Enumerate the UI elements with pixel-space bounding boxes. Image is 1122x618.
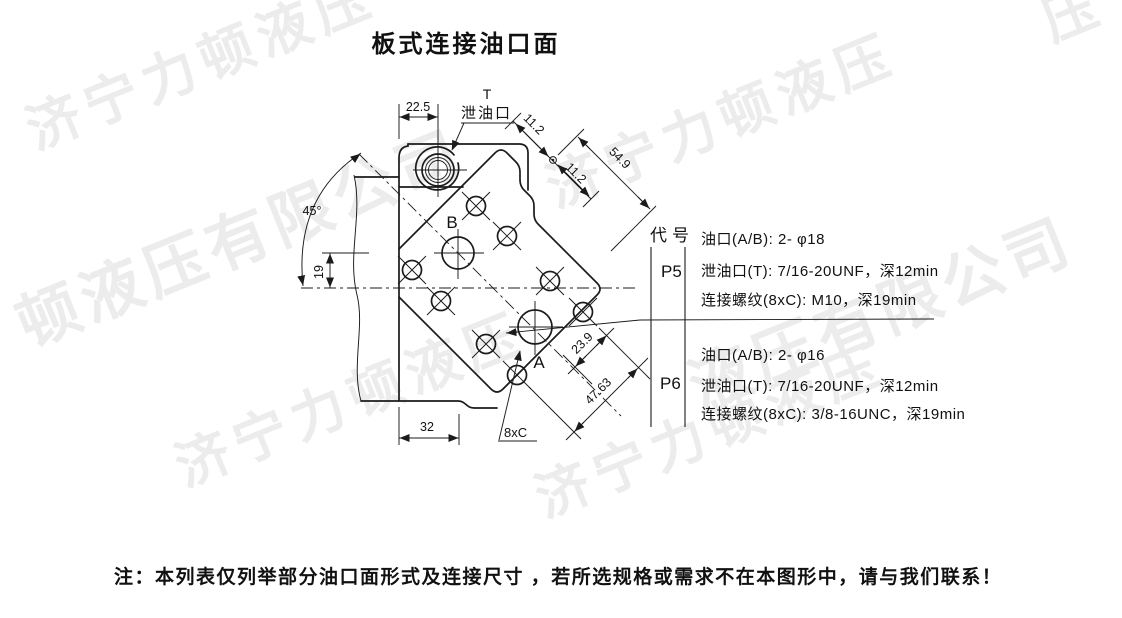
table-code-p6: P6 [660,374,681,393]
port-a-label: A [533,353,545,372]
dim-11-2a-value: 11.2 [521,111,547,137]
port-b-label: B [446,213,457,232]
dim-32: 32 [399,407,459,445]
dim-19: 19 [312,253,330,288]
footer-note: 注：本列表仅列举部分油口面形式及连接尺寸 ，若所选规格或需求不在本图形中，请与我… [114,565,1002,588]
technical-drawing: 济宁力顿液压 济宁力顿液压 顿液压有限公司 液压有限公司 济宁力顿液压 济宁力顿… [0,0,1122,618]
dim-47-63-value: 47.63 [582,375,614,407]
table-spec: 连接螺纹(8xC): 3/8-16UNC，深19min [701,406,965,423]
dim-32-value: 32 [420,420,434,434]
table-header: 代号 [650,226,694,245]
bolt-pattern-label: 8xC [504,425,527,440]
port-t-label: T [483,86,492,102]
drain-port-callout: T 泄油口 [452,86,514,150]
dim-19-value: 19 [312,265,326,279]
watermark-text: 济宁力顿液压 [18,0,385,161]
watermark-layer: 济宁力顿液压 济宁力顿液压 顿液压有限公司 液压有限公司 济宁力顿液压 济宁力顿… [7,0,1106,529]
page-title: 板式连接油口面 [372,30,561,58]
table-code-p5: P5 [661,262,682,281]
drawing-page: 济宁力顿液压 济宁力顿液压 顿液压有限公司 液压有限公司 济宁力顿液压 济宁力顿… [0,0,1122,618]
dim-22-5-value: 22.5 [406,100,430,114]
watermark-text: 压 [1034,0,1107,53]
watermark-text: 济宁力顿液压 [538,24,905,219]
watermark-text: 顿液压有限公司 [7,119,474,361]
table-spec: 连接螺纹(8xC): M10，深19min [701,292,917,309]
port-t-name: 泄油口 [461,105,512,122]
dim-45-value: 45° [303,204,322,218]
watermark-text: 济宁力顿液压 [167,303,534,498]
table-spec: 油口(A/B): 2- φ18 [701,231,825,248]
dim-23-9-value: 23.9 [569,330,596,357]
dim-47-63: 47.63 [529,358,648,440]
dim-23-9: 23.9 [563,328,650,384]
table-spec: 泄油口(T): 7/16-20UNF，深12min [701,263,939,280]
table-spec: 油口(A/B): 2- φ16 [701,347,825,364]
table-spec: 泄油口(T): 7/16-20UNF，深12min [701,378,939,395]
